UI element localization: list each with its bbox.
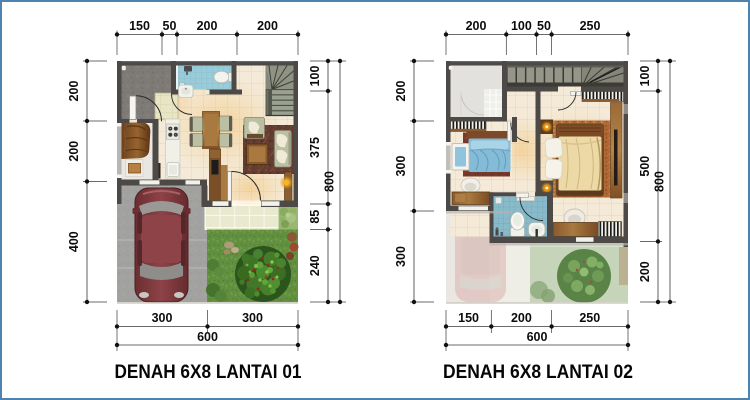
svg-text:200: 200 <box>466 19 487 33</box>
svg-text:800: 800 <box>323 171 337 192</box>
svg-text:100: 100 <box>308 66 322 87</box>
svg-text:500: 500 <box>638 156 652 177</box>
svg-text:300: 300 <box>394 246 408 267</box>
svg-text:200: 200 <box>257 19 278 33</box>
svg-text:200: 200 <box>197 19 218 33</box>
svg-text:150: 150 <box>458 311 479 325</box>
svg-text:375: 375 <box>308 137 322 158</box>
svg-text:DENAH 6X8 LANTAI 02: DENAH 6X8 LANTAI 02 <box>443 361 633 383</box>
svg-text:200: 200 <box>638 261 652 282</box>
svg-text:240: 240 <box>308 255 322 276</box>
svg-text:600: 600 <box>197 330 218 344</box>
svg-text:250: 250 <box>580 19 601 33</box>
svg-text:400: 400 <box>67 231 81 252</box>
svg-text:200: 200 <box>67 81 81 102</box>
svg-text:200: 200 <box>67 141 81 162</box>
svg-text:250: 250 <box>579 311 600 325</box>
svg-text:800: 800 <box>653 171 667 192</box>
svg-text:200: 200 <box>394 81 408 102</box>
svg-text:DENAH 6X8 LANTAI 01: DENAH 6X8 LANTAI 01 <box>115 361 302 383</box>
svg-text:300: 300 <box>152 311 173 325</box>
svg-text:150: 150 <box>129 19 150 33</box>
svg-text:100: 100 <box>511 19 532 33</box>
svg-text:300: 300 <box>242 311 263 325</box>
svg-text:600: 600 <box>527 330 548 344</box>
svg-text:50: 50 <box>537 19 551 33</box>
svg-text:200: 200 <box>511 311 532 325</box>
svg-text:100: 100 <box>638 66 652 87</box>
svg-text:300: 300 <box>394 156 408 177</box>
svg-text:85: 85 <box>308 210 322 224</box>
svg-text:50: 50 <box>163 19 177 33</box>
